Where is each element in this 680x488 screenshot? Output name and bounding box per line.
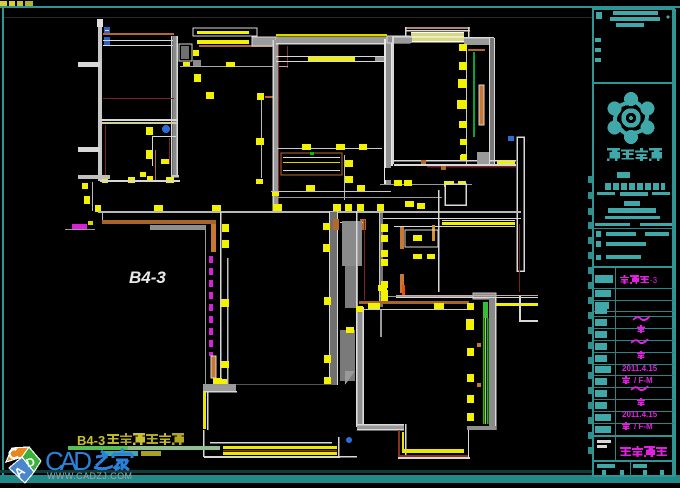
svg-text:-3: -3 xyxy=(650,276,658,285)
svg-text:B4-3: B4-3 xyxy=(129,268,166,287)
svg-text:/ F-M: / F-M xyxy=(634,422,653,431)
svg-text:/ F-M: / F-M xyxy=(634,376,653,385)
svg-text:2011.4.15: 2011.4.15 xyxy=(622,410,658,419)
svg-text:2011.4.15: 2011.4.15 xyxy=(622,364,658,373)
svg-text:WWW.CADZJ.COM: WWW.CADZJ.COM xyxy=(47,471,132,481)
